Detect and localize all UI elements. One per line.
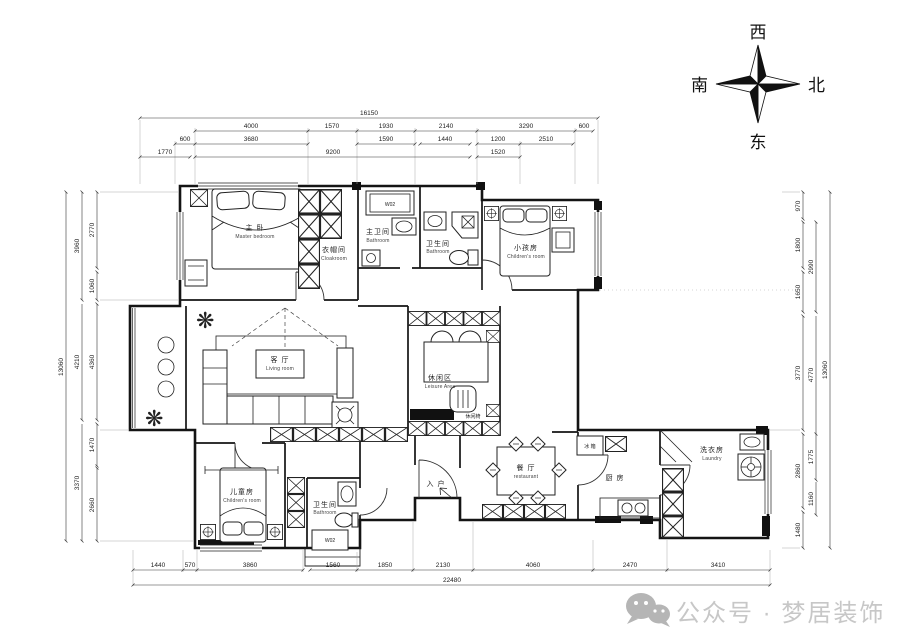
stove (618, 500, 648, 516)
dim-label: 3860 (243, 562, 258, 569)
dim-label: 1520 (491, 149, 506, 156)
room-label-en: Master bedroom (235, 234, 274, 240)
bench (185, 260, 207, 286)
floor-plan-page: 主 卧 Master bedroom 衣帽间 Cloakroom W02 主卫间… (0, 0, 899, 636)
dim-label: 1650 (795, 284, 802, 299)
compass-south-label: 南 (691, 76, 708, 96)
room-label-zh: 休闲区 (428, 373, 452, 382)
dim-label: 13060 (58, 358, 65, 376)
heater-label: W02 (385, 202, 396, 208)
room-label-en: Bathroom (313, 510, 336, 516)
room-label-zh: 小孩房 (514, 243, 538, 252)
dim-label: 1480 (795, 522, 802, 537)
room-label-zh: 儿童房 (230, 487, 254, 496)
compass-north-label: 北 (808, 76, 825, 96)
nightstand-icon (200, 524, 215, 539)
dim-label: 1440 (151, 562, 166, 569)
room-label-zh: 厨 房 (606, 473, 625, 482)
room-label-zh: 餐 厅 (517, 463, 536, 472)
plant-icon: ❋ (196, 308, 214, 333)
room-label-en: Cloakroom (321, 256, 347, 262)
entry-label: 入 户 (427, 479, 446, 488)
dim-label: 600 (579, 123, 590, 130)
dim-label: 2990 (808, 259, 815, 274)
dim-label: 570 (185, 562, 196, 569)
room-label-en: Living room (266, 366, 294, 372)
dim-label: 4210 (74, 354, 81, 369)
dim-label: 2770 (89, 222, 96, 237)
room-label-zh: 衣帽间 (322, 245, 346, 254)
dim-label: 1570 (325, 123, 340, 130)
dim-label: 2130 (436, 562, 451, 569)
toilet (362, 250, 380, 266)
side-table (332, 402, 358, 428)
dim-label: 3410 (711, 562, 726, 569)
dim-label: 1800 (795, 237, 802, 252)
dim-label: 4770 (808, 367, 815, 382)
room-label-zh: 客 厅 (271, 355, 290, 364)
nightstand-icon (484, 206, 498, 220)
nightstand-icon (267, 524, 282, 539)
floor-plan-svg: 主 卧 Master bedroom 衣帽间 Cloakroom W02 主卫间… (0, 0, 899, 636)
dim-label: 1440 (438, 136, 453, 143)
room-label-en: Leisure Area (425, 384, 455, 390)
hall-cabinets (271, 427, 408, 441)
room-label-zh: 卫生间 (313, 500, 337, 509)
room-label-en: restaurant (514, 474, 539, 480)
dim-label: 970 (795, 200, 802, 211)
room-label-zh: 洗衣房 (700, 445, 724, 454)
fridge-label: 冰 箱 (584, 443, 595, 450)
dim-label: 1930 (379, 123, 394, 130)
room-label-en: Laundry (702, 456, 722, 462)
room-label-zh: 主 卧 (246, 223, 265, 232)
dim-label: 1060 (89, 278, 96, 293)
room-label-en: Children's room (223, 498, 261, 504)
heater-label: W02 (325, 538, 336, 544)
dim-label: 3680 (244, 136, 259, 143)
nightstand-icon (552, 206, 566, 220)
room-label-zh: 主卫间 (366, 227, 390, 236)
dim-label: 2470 (623, 562, 638, 569)
dim-label: 2860 (795, 463, 802, 478)
dim-label: 1850 (378, 562, 393, 569)
toilet (450, 251, 469, 265)
dim-label: 1590 (379, 136, 394, 143)
dim-label: 1470 (89, 437, 96, 452)
dim-label: 16150 (360, 110, 378, 117)
compass-west-label: 西 (750, 23, 767, 43)
dim-label: 9200 (326, 149, 341, 156)
sink (424, 212, 446, 230)
toilet-tank (468, 250, 478, 265)
dim-label: 3960 (74, 238, 81, 253)
room-label-en: Children's room (507, 254, 545, 260)
dim-label: 4000 (244, 123, 259, 130)
dim-label: 1775 (808, 449, 815, 464)
leisure-note-label: 休闲椅 (465, 413, 480, 420)
compass-east-label: 东 (750, 133, 767, 153)
dim-label: 4060 (526, 562, 541, 569)
toilet-tank (352, 513, 358, 527)
toilet (335, 513, 353, 527)
room-label-en: Bathroom (426, 249, 449, 255)
coffee-table (256, 350, 304, 378)
dim-label: 22480 (443, 577, 461, 584)
dim-label: 1560 (326, 562, 341, 569)
dim-label: 3370 (74, 475, 81, 490)
tv-console (337, 348, 353, 398)
room-label-zh: 卫生间 (426, 239, 450, 248)
dim-label: 1770 (158, 149, 173, 156)
plant-icon: ❋ (145, 406, 163, 431)
dim-label: 4360 (89, 354, 96, 369)
nightstand-icon (190, 190, 207, 207)
watermark-text: 公众号 · 梦居装饰 (676, 600, 885, 627)
dim-label: 1160 (808, 492, 815, 506)
dim-label: 2660 (89, 497, 96, 512)
dim-label: 2140 (439, 123, 454, 130)
dim-label: 600 (180, 136, 191, 143)
dim-label: 3290 (519, 123, 534, 130)
dim-label: 13060 (822, 361, 829, 379)
dim-label: 3770 (795, 365, 802, 380)
dim-label: 1200 (491, 136, 506, 143)
dim-label: 2510 (539, 136, 554, 143)
room-label-en: Bathroom (366, 238, 389, 244)
